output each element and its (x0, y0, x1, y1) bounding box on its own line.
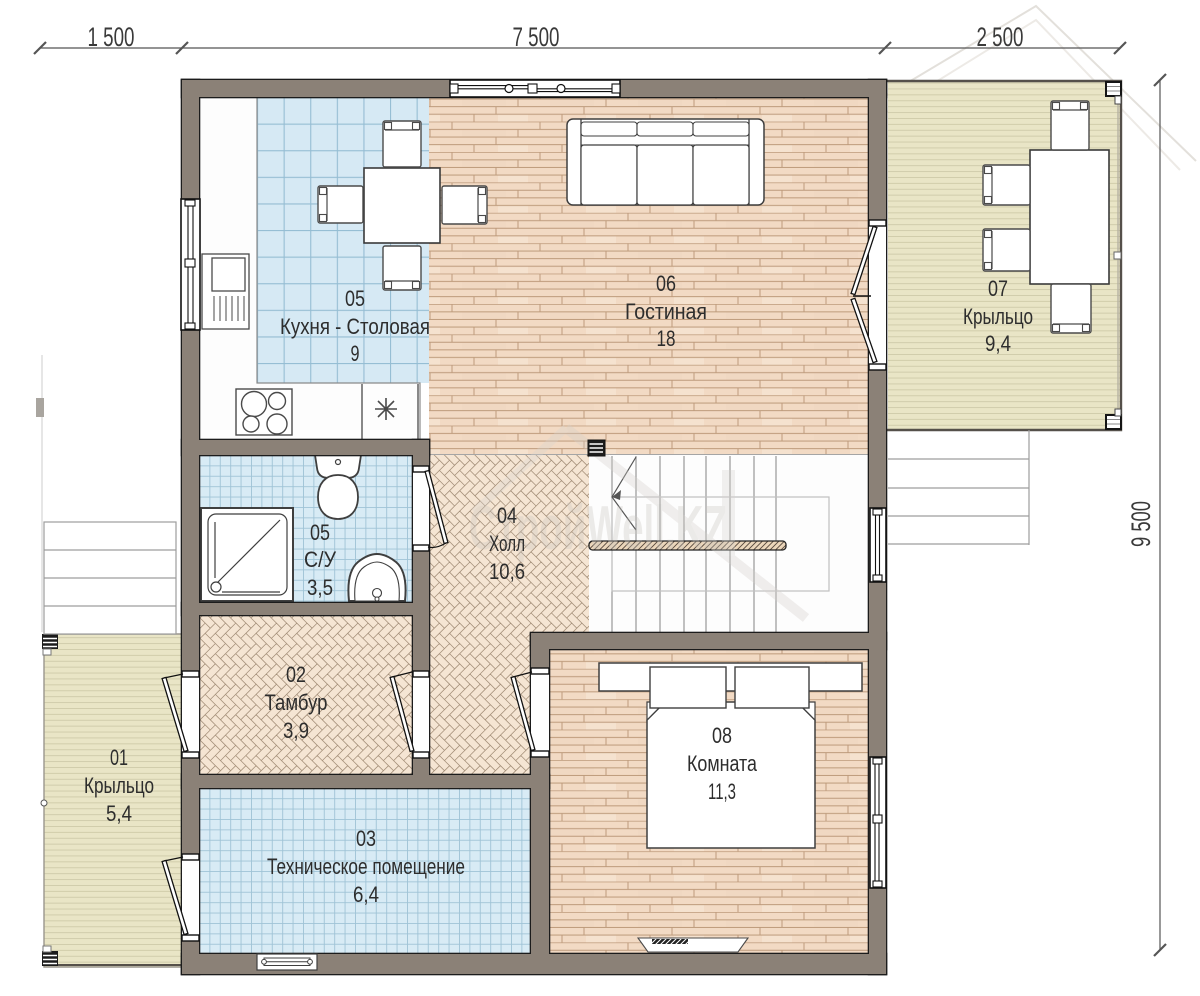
svg-text:Холл: Холл (489, 531, 525, 556)
svg-text:3,9: 3,9 (283, 718, 309, 743)
svg-text:7 500: 7 500 (513, 22, 560, 52)
svg-text:Комната: Комната (687, 751, 758, 776)
svg-text:11,3: 11,3 (708, 779, 736, 804)
svg-text:04: 04 (497, 503, 517, 528)
svg-text:9: 9 (351, 341, 360, 366)
svg-text:08: 08 (712, 723, 732, 748)
svg-text:01: 01 (110, 745, 128, 770)
svg-text:9 500: 9 500 (1126, 501, 1156, 547)
svg-text:Гостиная: Гостиная (625, 299, 707, 324)
svg-text:Крыльцо: Крыльцо (963, 304, 1033, 329)
svg-text:9,4: 9,4 (985, 331, 1011, 356)
svg-text:05: 05 (310, 520, 330, 545)
svg-text:07: 07 (988, 276, 1008, 301)
svg-text:03: 03 (356, 826, 376, 851)
svg-text:06: 06 (656, 271, 676, 296)
svg-text:1 500: 1 500 (88, 22, 135, 52)
svg-text:6,4: 6,4 (353, 882, 379, 907)
svg-text:Тамбур: Тамбур (265, 690, 328, 715)
svg-text:5,4: 5,4 (106, 801, 132, 826)
svg-text:3,5: 3,5 (307, 575, 333, 600)
svg-text:10,6: 10,6 (489, 559, 525, 584)
svg-text:Крыльцо: Крыльцо (84, 773, 154, 798)
svg-text:05: 05 (345, 286, 365, 311)
svg-text:2 500: 2 500 (977, 22, 1024, 52)
svg-text:02: 02 (286, 662, 306, 687)
svg-text:Техническое помещение: Техническое помещение (267, 854, 465, 879)
svg-text:Кухня - Столовая: Кухня - Столовая (280, 314, 430, 339)
svg-text:С/У: С/У (304, 547, 337, 572)
svg-text:18: 18 (657, 326, 676, 351)
